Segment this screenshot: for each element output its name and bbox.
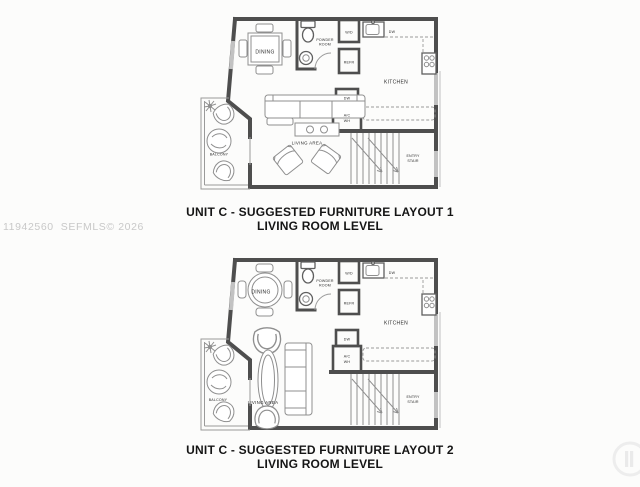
- dining-chair-icon: [256, 24, 273, 32]
- counter-edge: [385, 278, 435, 293]
- plant-icon: [204, 100, 216, 112]
- wh-label: WH: [344, 119, 351, 123]
- balcony-chair-icon: [211, 158, 237, 184]
- balcony-chair-icon: [211, 399, 237, 425]
- living-area-label: LIVING AREA: [292, 141, 323, 146]
- dining-chair-icon: [238, 281, 246, 298]
- plan2-caption-line2: LIVING ROOM LEVEL: [130, 458, 510, 472]
- dining-label: DINING: [251, 290, 270, 296]
- closet-dw-label: DW: [344, 338, 351, 342]
- floor-plan-1: DINING POWDER ROOM W/D REFR DW KITCHEN D…: [193, 11, 443, 204]
- plan2-caption: UNIT C - SUGGESTED FURNITURE LAYOUT 2 LI…: [130, 444, 510, 471]
- powder-sink-icon: [300, 293, 313, 306]
- dining-chair-icon: [239, 40, 247, 57]
- kitchen-fixtures: [363, 21, 436, 120]
- chaise-icon: [267, 118, 293, 125]
- powder-sink-icon: [300, 52, 313, 65]
- entry-stairs-icon: [351, 133, 399, 184]
- plan1-caption-line2: LIVING ROOM LEVEL: [130, 220, 510, 234]
- powder-room-label: POWDER: [316, 38, 334, 42]
- plant-icon: [204, 341, 216, 353]
- ac-label: A/C: [344, 355, 351, 359]
- plan2-caption-line1: UNIT C - SUGGESTED FURNITURE LAYOUT 2: [130, 444, 510, 458]
- toilet-tank-icon: [301, 262, 315, 269]
- washer-dryer-label: W/D: [345, 272, 353, 276]
- powder-door-swing: [315, 53, 331, 69]
- dishwasher-label: DW: [389, 271, 396, 275]
- peninsula-counter: [363, 107, 435, 120]
- balcony-label: BALCONY: [210, 153, 229, 157]
- powder-room-fixtures: [300, 21, 316, 65]
- kitchen-label: KITCHEN: [384, 321, 408, 327]
- balcony-table-icon: [207, 370, 231, 394]
- kitchen-fixtures: [363, 262, 436, 361]
- powder-room-fixtures: [300, 262, 316, 306]
- dining-chair-icon: [256, 66, 273, 74]
- wh-label: WH: [344, 360, 351, 364]
- powder-room-label: ROOM: [319, 43, 331, 47]
- floor-plan-1-drawing: DINING POWDER ROOM W/D REFR DW KITCHEN D…: [193, 11, 443, 199]
- plan1-caption-line1: UNIT C - SUGGESTED FURNITURE LAYOUT 1: [130, 206, 510, 220]
- balcony-label: BALCONY: [209, 398, 228, 402]
- powder-room-label: ROOM: [319, 284, 331, 288]
- floor-plan-2-drawing: DINING POWDER ROOM W/D REFR DW KITCHEN D…: [193, 252, 443, 440]
- toilet-tank-icon: [301, 21, 315, 28]
- entry-stair-label: ENTRY: [406, 395, 420, 399]
- dishwasher-label: DW: [389, 30, 396, 34]
- ac-wh-closet: [333, 346, 361, 372]
- entry-stairs-icon: [351, 374, 399, 425]
- entry-stair-label: ENTRY: [406, 154, 420, 158]
- counter-edge: [385, 37, 435, 52]
- logo-circle-icon: [604, 438, 640, 482]
- washer-dryer-label: W/D: [345, 31, 353, 35]
- powder-door-swing: [315, 294, 331, 310]
- accent-chair-icon: [311, 144, 342, 175]
- mls-watermark-text: 11942560 SEFMLS© 2026: [3, 221, 144, 233]
- living-area-label: LIVING AREA: [248, 400, 279, 405]
- closet-dw-label: DW: [344, 97, 351, 101]
- toilet-icon: [303, 28, 314, 42]
- entry-stair-label: STAIR: [407, 400, 419, 404]
- balcony-table-icon: [207, 129, 231, 153]
- coffee-table-icon: [295, 123, 339, 136]
- floor-plan-2: DINING POWDER ROOM W/D REFR DW KITCHEN D…: [193, 252, 443, 445]
- plan1-caption: UNIT C - SUGGESTED FURNITURE LAYOUT 1 LI…: [130, 206, 510, 233]
- dining-chair-icon: [256, 264, 273, 272]
- peninsula-counter: [363, 348, 435, 361]
- armchair-icon: [255, 406, 279, 429]
- entry-stair-label: STAIR: [407, 159, 419, 163]
- toilet-icon: [303, 269, 314, 283]
- dining-chair-icon: [256, 308, 273, 316]
- ac-label: A/C: [344, 114, 351, 118]
- kitchen-label: KITCHEN: [384, 80, 408, 86]
- powder-room-label: POWDER: [316, 279, 334, 283]
- dining-chair-icon: [283, 40, 291, 57]
- dining-label: DINING: [255, 50, 274, 56]
- accent-chair-icon: [273, 145, 304, 176]
- refrigerator-label: REFR: [344, 61, 355, 65]
- refrigerator-label: REFR: [344, 302, 355, 306]
- sofa-icon: [285, 343, 312, 415]
- dining-chair-icon: [284, 281, 292, 298]
